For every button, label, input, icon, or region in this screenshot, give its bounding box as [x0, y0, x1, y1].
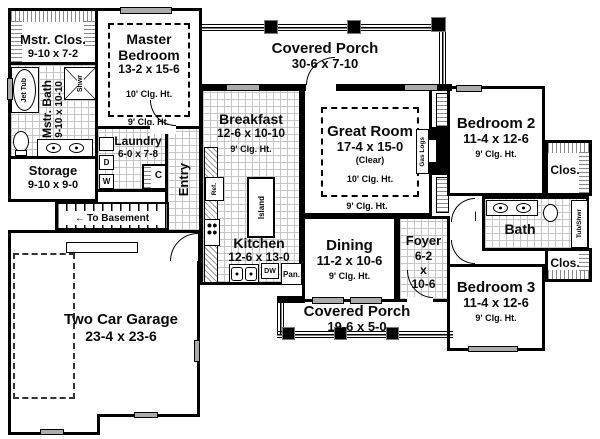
labels: Master Bedroom 13-2 x 15-6 10' Clg. Ht.: [108, 31, 190, 99]
room-name: Bedroom 2: [457, 115, 535, 132]
labels: Laundry 6-0 x 7-8: [108, 135, 168, 160]
cabinet: [99, 137, 114, 151]
labels: C: [151, 170, 166, 182]
room-name: Bedroom 3: [457, 279, 535, 296]
room-name: Laundry: [114, 135, 161, 149]
room-closet-lower: Clos.: [545, 248, 592, 282]
jet-tub-label: Jet Tub: [21, 78, 28, 102]
porch-column: [347, 20, 361, 34]
ceiling-height: 9' Clg. Ht.: [230, 144, 271, 154]
closet-label: Clos.: [550, 164, 579, 178]
room-dims: 6-0 x 7-8: [118, 149, 158, 161]
toilet-tank: [15, 150, 27, 156]
room-name: Covered Porch: [304, 303, 411, 320]
kitchen-sink: [229, 264, 259, 283]
room-name: Breakfast: [219, 111, 283, 127]
porch-bottom-labels: Covered Porch 19-6 x 5-0: [287, 303, 427, 335]
front-door-opening: [407, 297, 433, 304]
room-entry: Entry: [165, 126, 202, 233]
sink: [69, 143, 84, 153]
labels: Clos.: [548, 257, 582, 271]
labels: Bath: [485, 221, 555, 237]
labels: Two Car Garage 23-4 x 23-6: [41, 311, 201, 344]
room-name: Storage: [29, 164, 77, 179]
room-bedroom3: Bedroom 3 11-4 x 12-6 9' Clg. Ht.: [447, 264, 545, 351]
window: [468, 346, 518, 352]
garage-door-marker: [40, 429, 64, 435]
door-opening: [306, 84, 336, 91]
floor-plan: Covered Porch 30-6 x 7-10 Mstr. Clos. 9-…: [0, 0, 600, 439]
refrigerator-label: Ref.: [211, 183, 218, 195]
wall-porch-step: [277, 296, 305, 303]
dishwasher: DW: [261, 263, 279, 279]
pantry: Pan.: [281, 263, 302, 285]
vanity: [37, 139, 93, 157]
kitchen-island: Island: [247, 177, 275, 238]
room-dims: 23-4 x 23-6: [85, 328, 157, 344]
shower: Shwr: [64, 67, 96, 100]
window: [456, 85, 482, 92]
room-dims: 11-2 x 10-6: [317, 254, 383, 269]
to-basement-label: To Basement: [87, 213, 149, 224]
room-dims-width: 6-2: [415, 249, 432, 263]
entry-label-box: Entry: [168, 129, 199, 230]
ceiling-height: 10' Clg. Ht.: [126, 89, 172, 99]
sink: [516, 203, 531, 213]
jet-tub: Jet Tub: [13, 69, 36, 111]
to-basement-band: ← To Basement: [61, 211, 163, 225]
window: [226, 84, 260, 91]
window: [404, 84, 438, 91]
porch-column: [431, 17, 446, 32]
firebox-opening: [429, 140, 436, 162]
ceiling-height-outer: 9' Clg. Ht.: [305, 201, 429, 211]
closet-label: C: [155, 170, 162, 182]
room-master-bedroom: Master Bedroom 13-2 x 15-6 10' Clg. Ht. …: [95, 8, 202, 132]
sink-basin: [245, 267, 257, 281]
ceiling-height: 9' Clg. Ht.: [475, 149, 516, 159]
washer: W: [99, 174, 114, 189]
room-name: Foyer: [406, 233, 441, 249]
island-label: Island: [257, 196, 266, 219]
room-master-bath: Jet Tub Shwr Mstr. Bath 9-10 x 10-10: [8, 62, 98, 160]
room-dims: 9-10 x 10-10: [54, 81, 65, 138]
closet-rod-hatch: [11, 11, 95, 22]
labels: Great Room 17-4 x 15-0 (Clear) 10' Clg. …: [321, 123, 419, 184]
porch-column: [264, 20, 278, 34]
room-dims: 17-4 x 15-0: [337, 140, 404, 155]
dishwasher-label: DW: [264, 268, 276, 275]
ceiling-height: 9' Clg. Ht.: [329, 271, 370, 281]
room-name: Covered Porch: [272, 40, 379, 57]
ceiling-height: 9' Clg. Ht.: [475, 313, 516, 323]
arrow-left-icon: ←: [75, 213, 85, 224]
room-dims: 12-6 x 10-10: [217, 127, 285, 141]
tub-shower-label: Tub/Shwr: [576, 209, 583, 238]
garage-entry-step: [66, 242, 138, 253]
kitchen-labels: Kitchen 12-6 x 13-0: [215, 235, 303, 265]
closet-label: Clos.: [550, 257, 579, 271]
toilet: [13, 131, 29, 152]
room-master-closet: Mstr. Clos. 9-10 x 7-2: [8, 8, 98, 66]
tub-shower: Tub/Shwr: [571, 200, 588, 248]
window: [120, 7, 172, 14]
room-dims: 9-10 x 9-0: [28, 179, 78, 192]
washer-label: W: [103, 177, 111, 186]
clear-note: (Clear): [356, 155, 385, 165]
room-name: Two Car Garage: [64, 311, 178, 328]
gas-logs-label: Gas Logs: [419, 137, 426, 167]
labels: Storage 9-10 x 9-0: [11, 164, 95, 192]
ceiling-height: 9' Clg. Ht.: [346, 201, 387, 211]
breakfast-labels: Breakfast 12-6 x 10-10 9' Clg. Ht.: [203, 111, 299, 154]
labels: Bedroom 3 11-4 x 12-6 9' Clg. Ht.: [450, 279, 542, 324]
room-dims: 11-4 x 12-6: [463, 296, 529, 311]
room-breakfast-kitchen: Breakfast 12-6 x 10-10 9' Clg. Ht. Ref. …: [200, 86, 302, 285]
room-dims: 13-2 x 15-6: [118, 63, 179, 77]
room-dims: 9-10 x 7-2: [28, 48, 78, 61]
refrigerator: Ref.: [205, 177, 224, 201]
sink: [46, 143, 61, 153]
labels: Bedroom 2 11-4 x 12-6 9' Clg. Ht.: [450, 115, 542, 160]
vanity: [486, 200, 538, 216]
room-name: Great Room: [327, 123, 413, 140]
room-name: Mstr. Clos.: [20, 33, 86, 48]
room-closet-upper: Clos.: [545, 140, 592, 196]
toilet: [543, 204, 558, 222]
garage-door-marker: [134, 412, 158, 418]
room-dims: 11-4 x 12-6: [463, 132, 529, 147]
room-bath: Bath Tub/Shwr: [482, 196, 589, 251]
room-name: Master Bedroom: [108, 31, 190, 63]
door-swing: [451, 198, 475, 222]
window: [350, 297, 382, 304]
sink: [493, 203, 508, 213]
room-bedroom2: Bedroom 2 11-4 x 12-6 9' Clg. Ht.: [447, 86, 545, 196]
room-dining: Dining 11-2 x 10-6 9' Clg. Ht.: [302, 216, 397, 302]
window: [312, 297, 344, 304]
window: [194, 340, 200, 362]
porch-railing-top-right: [439, 24, 446, 88]
shower-label: Shwr: [77, 74, 84, 93]
door-swing: [451, 240, 475, 264]
room-storage: Storage 9-10 x 9-0: [8, 156, 98, 202]
porch-railing-top: [202, 24, 442, 31]
door-opening: [150, 125, 176, 134]
stairs-to-basement: ← To Basement: [55, 202, 169, 230]
closet-rod-hatch: [144, 166, 151, 188]
room-dims: 19-6 x 5-0: [327, 320, 386, 335]
room-name: Mstr. Bath: [40, 80, 54, 138]
room-name: Kitchen: [233, 235, 284, 251]
room-name: Bath: [504, 221, 535, 237]
dryer-label: D: [104, 158, 110, 167]
labels: Dining 11-2 x 10-6 9' Clg. Ht.: [305, 237, 394, 282]
room-name: Dining: [326, 237, 373, 254]
ceiling-height-outer: 9' Clg. Ht.: [98, 117, 199, 127]
room-name: Entry: [176, 163, 191, 196]
window: [7, 78, 13, 100]
labels: Mstr. Clos. 9-10 x 7-2: [11, 33, 95, 61]
dryer: D: [99, 155, 114, 170]
ceiling-height: 10' Clg. Ht.: [347, 174, 393, 184]
labels: Clos.: [548, 164, 582, 178]
sink-basin: [231, 267, 243, 281]
gas-logs-box: Gas Logs: [416, 129, 429, 174]
pantry-label: Pan.: [283, 270, 300, 279]
room-great-room: Great Room 17-4 x 15-0 (Clear) 10' Clg. …: [302, 86, 432, 216]
closet-rod-hatch: [548, 270, 589, 279]
